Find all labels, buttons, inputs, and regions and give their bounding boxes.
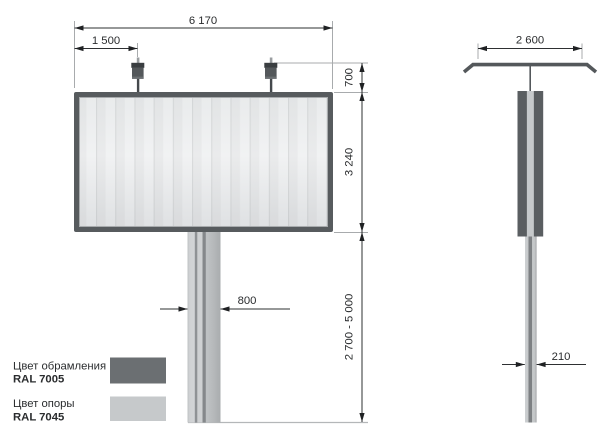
dim-support-depth-label: 210 bbox=[552, 351, 571, 363]
panel-side-back-face bbox=[534, 91, 543, 237]
legend-frame-swatch bbox=[110, 358, 166, 384]
lamp-stem bbox=[270, 79, 272, 93]
dim-panel-height-label: 3 240 bbox=[344, 148, 356, 176]
pole-body bbox=[188, 232, 221, 423]
dim-support-height-label: 2 700 - 5 000 bbox=[344, 294, 356, 361]
lamp-body-base bbox=[265, 77, 277, 79]
dim-lamp-bar-label: 2 600 bbox=[516, 35, 544, 47]
billboard-panel bbox=[74, 92, 333, 232]
panel-side bbox=[518, 91, 544, 237]
legend-support-label: Цвет опоры bbox=[13, 398, 75, 410]
dim-support-width-label: 800 bbox=[238, 295, 257, 307]
drawing-canvas: 6 170 1 500 bbox=[0, 0, 600, 439]
legend-frame-code: RAL 7005 bbox=[13, 374, 64, 386]
billboard-drawing: 6 170 1 500 bbox=[0, 0, 600, 439]
lamp-cap bbox=[264, 63, 277, 68]
support-pole-front bbox=[188, 232, 221, 423]
panel-side-core bbox=[527, 91, 534, 237]
lamp-stub bbox=[137, 58, 140, 64]
lamp-stem bbox=[137, 79, 139, 93]
legend-frame-label: Цвет обрамления bbox=[13, 361, 106, 373]
lamp-cap bbox=[131, 63, 144, 68]
panel-side-front-face bbox=[518, 91, 527, 237]
support-pole-side bbox=[525, 237, 537, 423]
lamp-stub bbox=[270, 58, 273, 64]
dim-total-width-label: 6 170 bbox=[189, 15, 217, 27]
legend-support-code: RAL 7045 bbox=[13, 412, 64, 424]
panel-face-stripes bbox=[80, 98, 328, 227]
dim-lamp-offset-label: 1 500 bbox=[92, 35, 120, 47]
legend-support-swatch bbox=[110, 397, 166, 422]
dim-lamp-height-label: 700 bbox=[344, 68, 356, 87]
lamp-body-base bbox=[132, 77, 144, 79]
